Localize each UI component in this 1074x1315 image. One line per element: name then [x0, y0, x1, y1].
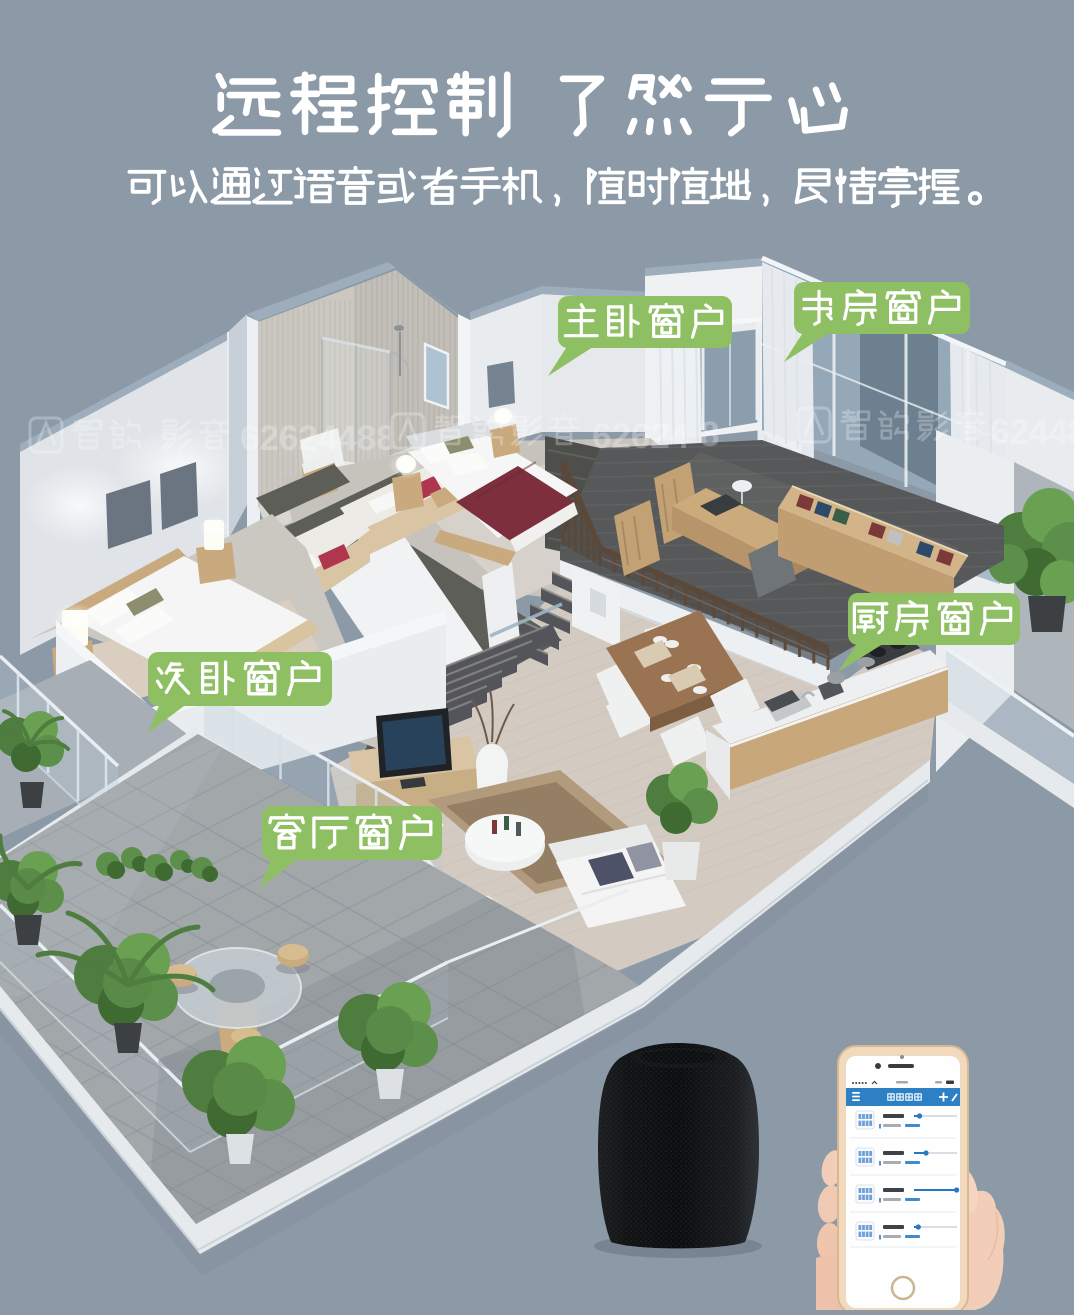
svg-text:62624488: 62624488	[240, 419, 396, 458]
svg-text:62448: 62448	[990, 413, 1074, 452]
svg-text:8: 8	[700, 415, 719, 454]
svg-text:62624: 62624	[592, 417, 690, 456]
